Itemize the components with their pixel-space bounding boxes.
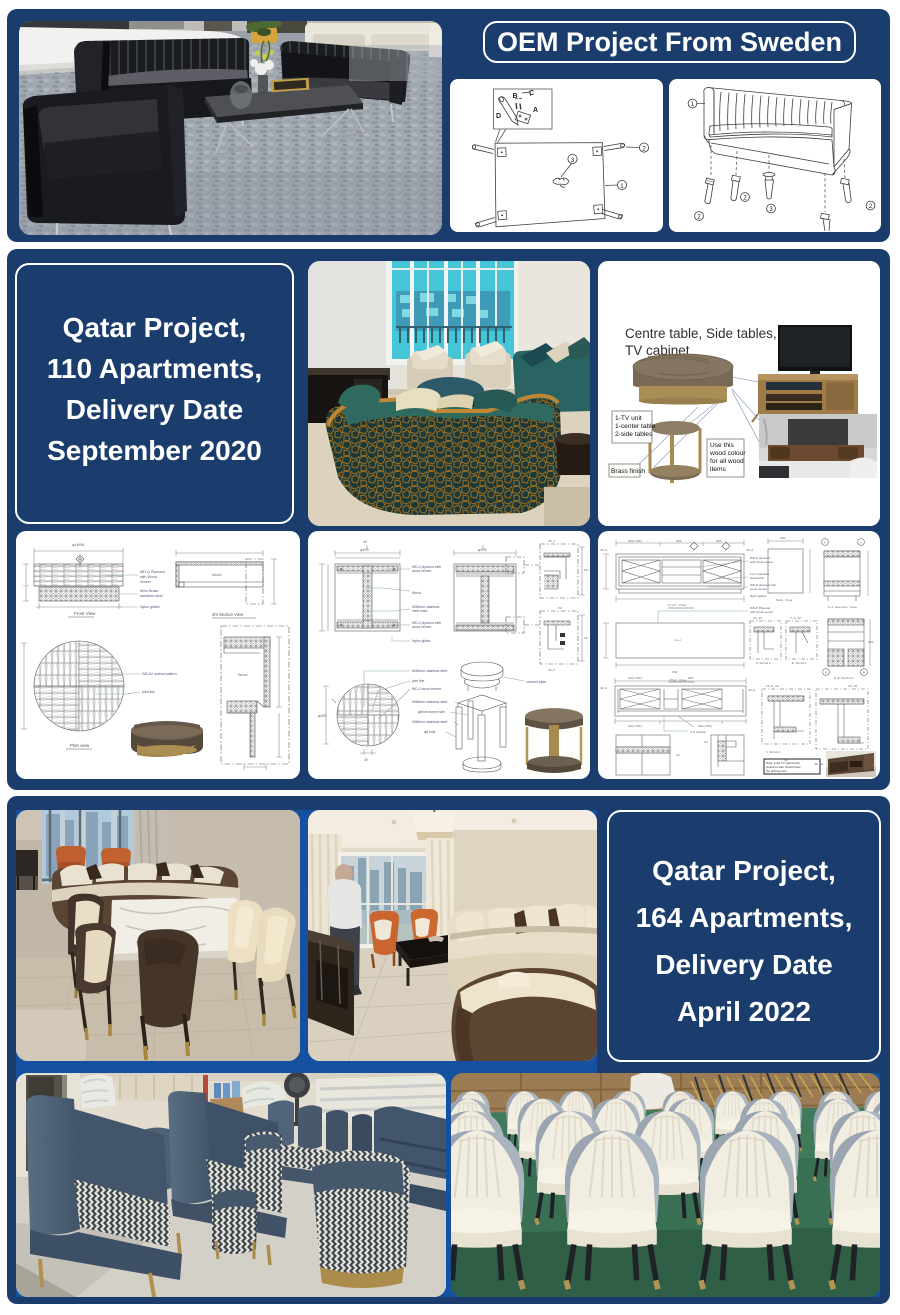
svg-text:A: A <box>860 542 862 545</box>
svg-text:3: 3 <box>571 157 575 164</box>
svg-text:1: 1 <box>691 101 695 108</box>
svg-text:940: 940 <box>676 540 682 543</box>
svg-text:with Wood: with Wood <box>140 575 157 579</box>
svg-text:steel finish: steel finish <box>750 576 765 580</box>
svg-text:Wood: Wood <box>674 638 681 642</box>
svg-text:with wood veneer: with wood veneer <box>750 610 773 614</box>
svg-text:B: B <box>513 93 518 100</box>
svg-text:400: 400 <box>780 537 786 540</box>
svg-text:Centre table, Side tables,: Centre table, Side tables, <box>625 326 777 341</box>
svg-text:C-C Section: C-C Section <box>690 730 707 734</box>
svg-text:Wood: Wood <box>212 573 221 577</box>
svg-text:with wood veneer: with wood veneer <box>750 560 773 564</box>
svg-text:40: 40 <box>364 758 368 762</box>
svg-text:940: 940 <box>672 671 678 674</box>
svg-text:wood veneer: wood veneer <box>412 625 432 629</box>
svg-text:940: 940 <box>688 677 694 680</box>
svg-text:940: 940 <box>716 540 722 543</box>
svg-text:Nylon glides: Nylon glides <box>412 639 431 643</box>
svg-text:2: 2 <box>697 214 701 221</box>
svg-text:Brass finish: Brass finish <box>611 468 645 475</box>
svg-text:940(780): 940(780) <box>698 724 713 728</box>
svg-text:A Detail: A Detail <box>756 661 771 665</box>
svg-text:40,10: 40,10 <box>814 763 823 766</box>
svg-text:stainless steel: stainless steel <box>140 594 163 598</box>
svg-text:6060mm stainless steel: 6060mm stainless steel <box>412 669 448 673</box>
svg-text:for all wood: for all wood <box>710 458 744 465</box>
svg-text:the skirting line?: the skirting line? <box>766 769 787 773</box>
svg-text:940(780): 940(780) <box>628 539 643 543</box>
svg-text:Front View: Front View <box>668 603 686 607</box>
svg-text:6060mm stainless steel: 6060mm stainless steel <box>412 700 448 704</box>
svg-text:B: B <box>863 672 865 675</box>
svg-text:connect plate: connect plate <box>526 680 546 684</box>
svg-text:φ400: φ400 <box>478 549 487 553</box>
svg-text:joint line: joint line <box>411 679 425 683</box>
svg-text:φ6mm screw hole: φ6mm screw hole <box>418 710 445 714</box>
svg-text:40,8: 40,8 <box>600 549 607 552</box>
svg-text:1-center table: 1-center table <box>615 423 656 430</box>
svg-text:B Detail: B Detail <box>792 661 807 665</box>
svg-text:WD-Q Plywood: WD-Q Plywood <box>140 570 165 574</box>
svg-text:wood veneer: wood veneer <box>750 587 767 591</box>
svg-text:B: B <box>825 672 827 675</box>
svg-text:Front View: Front View <box>74 611 96 616</box>
svg-text:6060mm stainless steel: 6060mm stainless steel <box>412 720 448 724</box>
svg-text:φ450: φ450 <box>318 715 326 719</box>
svg-text:25,10: 25,10 <box>848 685 857 688</box>
svg-text:φ1000: φ1000 <box>72 544 85 548</box>
svg-text:25,7: 25,7 <box>548 540 555 543</box>
svg-text:40,8: 40,8 <box>600 687 607 690</box>
svg-text:Nylon glides: Nylon glides <box>750 594 767 598</box>
svg-text:2: 2 <box>743 195 747 202</box>
svg-text:25,7: 25,7 <box>548 669 555 672</box>
svg-text:1-TV unit: 1-TV unit <box>615 415 642 422</box>
svg-text:2: 2 <box>869 203 873 210</box>
svg-text:3/4 Section View: 3/4 Section View <box>212 612 244 617</box>
svg-text:items: items <box>710 466 726 473</box>
svg-text:WD-2 wood veneer: WD-2 wood veneer <box>412 687 442 691</box>
svg-text:40: 40 <box>363 540 367 544</box>
svg-text:A: A <box>533 107 538 114</box>
svg-text:50: 50 <box>584 637 588 640</box>
svg-text:A: A <box>824 542 826 545</box>
svg-text:7,5,10: 7,5,10 <box>790 617 801 620</box>
svg-text:B-B Section: B-B Section <box>834 676 854 680</box>
svg-text:940(780): 940(780) <box>628 724 643 728</box>
svg-text:30: 30 <box>704 741 708 744</box>
svg-text:φ400: φ400 <box>360 549 369 553</box>
svg-text:veneer: veneer <box>140 580 152 584</box>
svg-text:D: D <box>496 113 501 120</box>
svg-text:40,8: 40,8 <box>748 689 755 692</box>
svg-text:Wood: Wood <box>412 591 421 595</box>
svg-text:940(780): 940(780) <box>628 676 643 680</box>
svg-text:2: 2 <box>642 145 646 152</box>
svg-text:Plan View: Plan View <box>670 678 686 682</box>
svg-text:Plan view: Plan view <box>70 743 90 748</box>
svg-text:50: 50 <box>558 607 562 610</box>
svg-text:10: 10 <box>676 754 680 757</box>
svg-text:Wood: Wood <box>238 673 247 677</box>
svg-text:Nylon glides: Nylon glides <box>140 605 160 609</box>
svg-text:C Detail: C Detail <box>766 750 781 754</box>
svg-text:25,10: 25,10 <box>753 617 762 620</box>
svg-text:1: 1 <box>620 183 624 190</box>
svg-text:Use this: Use this <box>710 442 735 449</box>
svg-text:joint line: joint line <box>141 690 155 694</box>
svg-text:3: 3 <box>769 206 773 213</box>
svg-text:2-side tables: 2-side tables <box>615 431 653 438</box>
svg-text:Side View: Side View <box>776 598 792 602</box>
svg-text:WD-02 walnut pattern: WD-02 walnut pattern <box>142 672 177 676</box>
svg-text:φ8 hole: φ8 hole <box>424 730 436 734</box>
svg-text:25,25,50: 25,25,50 <box>584 569 590 572</box>
svg-text:860: 860 <box>868 641 874 644</box>
svg-text:10,5,10: 10,5,10 <box>766 685 779 688</box>
svg-text:wood veneer: wood veneer <box>412 569 432 573</box>
svg-text:40,8: 40,8 <box>746 549 753 552</box>
svg-text:A-A Section View: A-A Section View <box>828 605 857 609</box>
svg-text:5mm Brass: 5mm Brass <box>140 589 158 593</box>
svg-text:wood colour: wood colour <box>709 450 746 457</box>
svg-text:C: C <box>529 90 534 97</box>
svg-text:steel base: steel base <box>412 609 428 613</box>
